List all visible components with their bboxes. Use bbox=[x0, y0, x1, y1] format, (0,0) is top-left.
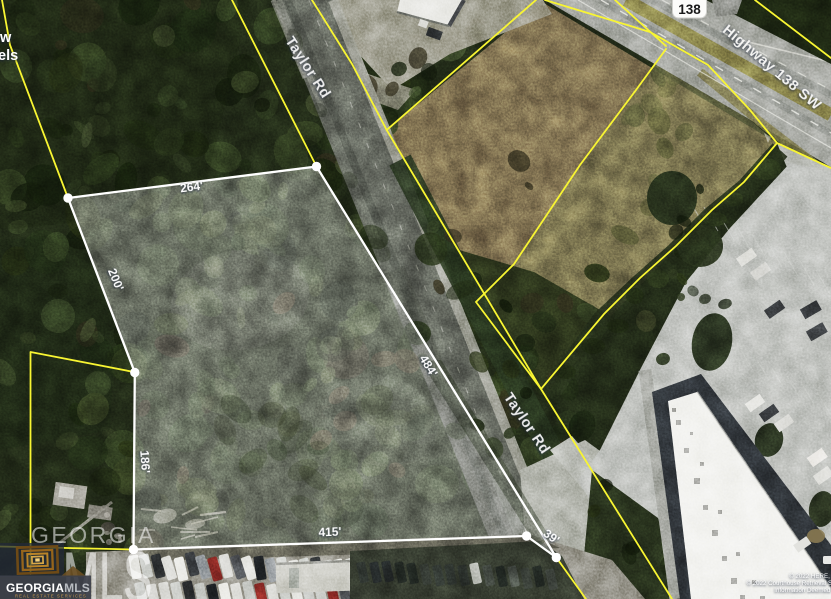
svg-text:415': 415' bbox=[318, 525, 341, 540]
svg-text:264': 264' bbox=[179, 179, 204, 196]
svg-text:186': 186' bbox=[137, 450, 153, 474]
svg-text:REAL ESTATE SERVICES: REAL ESTATE SERVICES bbox=[15, 594, 87, 599]
svg-text:© 2022 HERE, Ter: © 2022 HERE, Ter bbox=[789, 573, 831, 580]
svg-text:w: w bbox=[0, 30, 12, 46]
svg-text:Information Deemed Re: Information Deemed Re bbox=[774, 587, 831, 594]
svg-text:© 2022 Courthouse Retrieval Sy: © 2022 Courthouse Retrieval Syst bbox=[746, 580, 831, 587]
svg-text:138: 138 bbox=[678, 2, 701, 17]
svg-text:els: els bbox=[0, 48, 18, 64]
